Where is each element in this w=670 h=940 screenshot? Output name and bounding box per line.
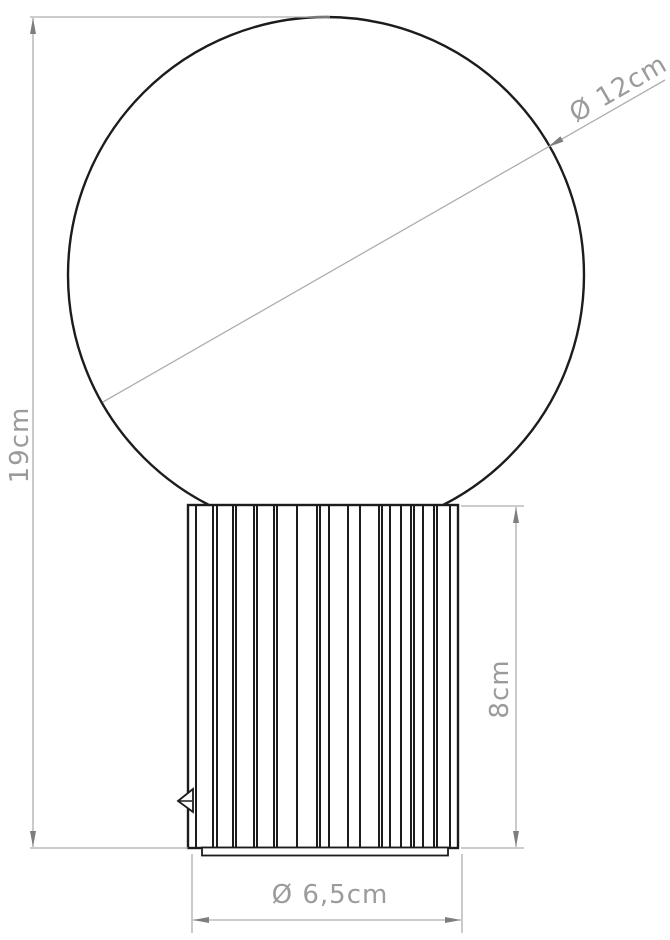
arrowhead-down-icon: [30, 831, 36, 847]
sphere-diameter-label: Ø 12cm: [565, 49, 670, 129]
lamp-base: [178, 505, 458, 856]
dimension-base-diameter: Ø 6,5cm: [192, 854, 462, 933]
arrowhead-icon: [548, 136, 564, 147]
arrowhead-right-icon: [445, 917, 461, 923]
lamp-globe: [68, 17, 584, 533]
base-height-label: 8cm: [485, 659, 515, 718]
base-body: [188, 505, 458, 848]
base-plinth: [202, 848, 448, 856]
diagram-canvas: Ø 12cm 19cm 8cm: [0, 0, 670, 940]
dimension-base-height: 8cm: [461, 506, 524, 848]
total-height-label: 19cm: [5, 407, 35, 484]
arrowhead-down-icon: [513, 831, 519, 847]
lamp-dimension-diagram: Ø 12cm 19cm 8cm: [0, 0, 670, 940]
arrowhead-left-icon: [193, 917, 209, 923]
arrowhead-up-icon: [30, 18, 36, 34]
dimension-sphere-diameter: Ø 12cm: [103, 49, 670, 402]
arrowhead-up-icon: [513, 507, 519, 523]
base-diameter-label: Ø 6,5cm: [272, 880, 389, 910]
